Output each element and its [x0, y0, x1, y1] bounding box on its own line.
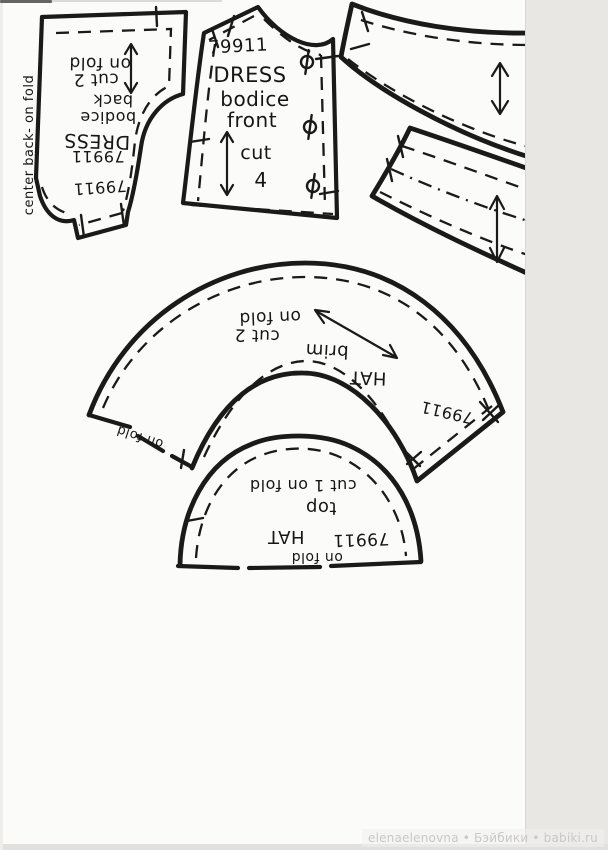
- notch-tick: [351, 44, 369, 49]
- scanner-background-right: [525, 0, 608, 850]
- label-bodice-back-cut: cut 2: [73, 69, 119, 90]
- bodice-front-right-seam: [321, 55, 325, 206]
- bodice-back-shoulder-seam: [79, 213, 122, 225]
- grainline-arrow-icon: [492, 63, 508, 114]
- notch-tick: [81, 215, 84, 237]
- label-hat-brim-number: 79911: [419, 397, 475, 428]
- label-hat-brim-edge-fold: on fold: [115, 422, 166, 451]
- scan-edge-artifact: [0, 0, 52, 3]
- label-bodice-back-number2: 79911: [73, 176, 128, 199]
- scanned-pattern-page: on fold cut 2 back bodice DRESS 79911 79…: [0, 0, 608, 850]
- label-hat-top-part: top: [305, 497, 336, 519]
- label-hat-brim-part: brim: [305, 339, 349, 362]
- notch-tick: [190, 139, 209, 142]
- grainline-arrow-icon: [490, 196, 504, 262]
- label-hat-brim-garment: HAT: [349, 366, 387, 388]
- label-hat-top-cut: cut 1 on fold: [249, 476, 356, 495]
- hat-brim-outer-seam: [103, 277, 488, 408]
- label-bodice-back-number: 79911: [71, 147, 124, 166]
- label-bodice-front-number: 79911: [208, 34, 269, 58]
- label-hat-brim-cut: cut 2: [234, 324, 280, 346]
- label-bodice-front-part2: front: [227, 108, 277, 132]
- scan-edge-artifact: [52, 0, 222, 2]
- label-hat-top-edge-fold: on fold: [291, 549, 343, 565]
- band2-foldline: [391, 169, 528, 221]
- label-bodice-back-part2: back: [93, 91, 134, 111]
- label-bodice-front-qty: 4: [254, 168, 267, 192]
- notch-tick: [156, 7, 157, 26]
- label-bodice-back-part1: bodice: [80, 108, 136, 127]
- band1-seamline: [348, 59, 529, 147]
- piece-hat-top: cut 1 on fold top HAT 79911 on fold: [178, 436, 421, 568]
- button-mark-icon: [305, 173, 320, 198]
- button-mark-icon: [299, 49, 314, 74]
- label-bodice-front-cut: cut: [240, 142, 271, 164]
- pattern-drawing: on fold cut 2 back bodice DRESS 79911 79…: [0, 0, 608, 850]
- band2-seamline: [380, 192, 528, 255]
- watermark: elenaelenovna • Бэйбики • babiki.ru: [362, 829, 604, 847]
- piece-dress-bodice-front: 79911 DRESS bodice front cut 4: [183, 7, 338, 218]
- label-hat-top-garment: HAT: [267, 526, 304, 547]
- piece-dress-bodice-back: on fold cut 2 back bodice DRESS 79911 79…: [22, 7, 186, 238]
- button-mark-icon: [302, 114, 317, 139]
- label-bodice-front-garment: DRESS: [213, 63, 286, 87]
- scanner-background-left: [0, 0, 3, 850]
- grainline-arrow-icon: [221, 132, 233, 195]
- label-center-back-fold: center back- on fold: [22, 75, 37, 215]
- label-hat-top-number: 79911: [332, 528, 389, 550]
- notch-tick: [181, 450, 184, 468]
- notch-tick: [121, 204, 124, 226]
